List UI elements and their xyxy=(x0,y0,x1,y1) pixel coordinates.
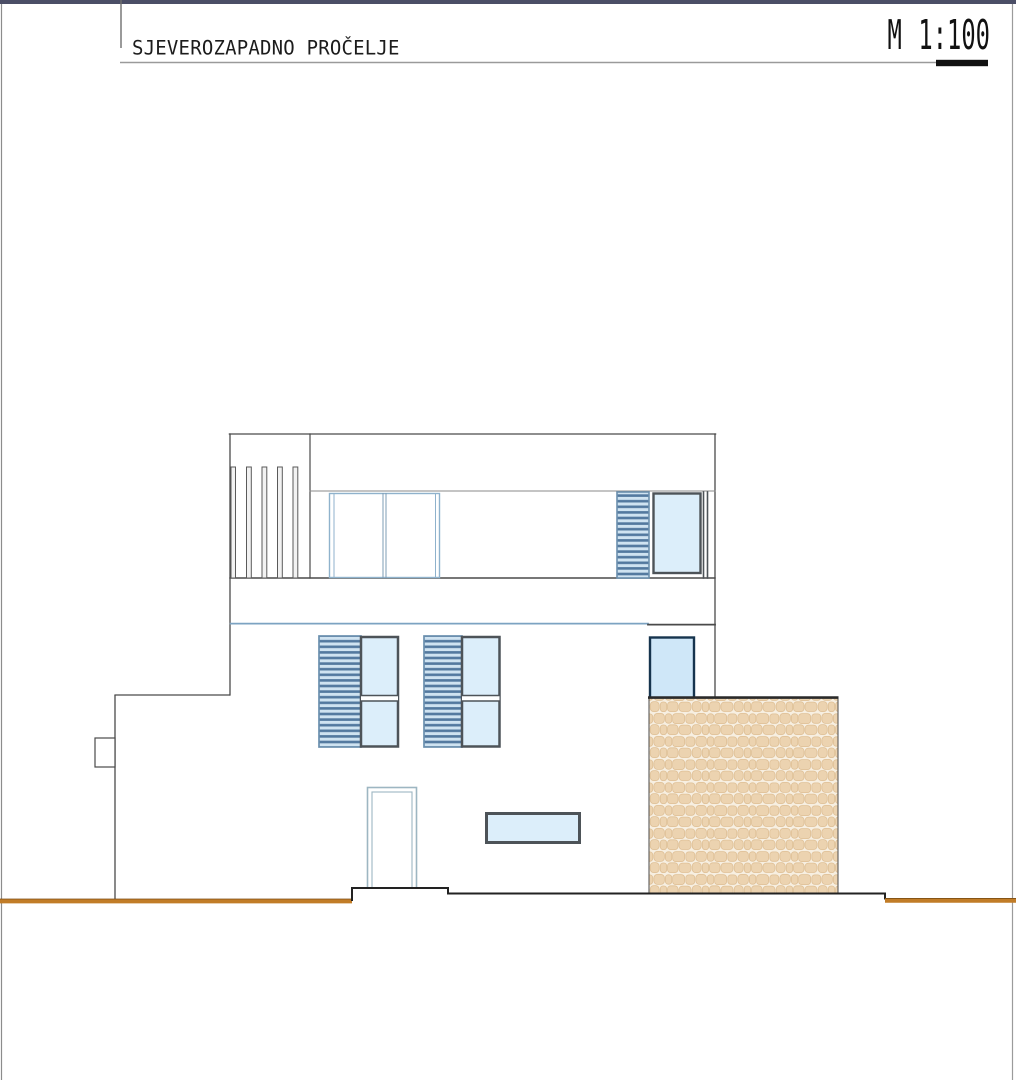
glazed-window-icon xyxy=(462,637,500,747)
louver-shutter-icon xyxy=(617,492,649,578)
vertical-louver-slats xyxy=(231,467,298,578)
slat-icon xyxy=(262,467,267,578)
stone-wall xyxy=(648,698,839,894)
window-mid-rail xyxy=(462,696,500,702)
ground-lines xyxy=(0,888,1016,901)
drawing-title: SJEVEROZAPADNO PROČELJE xyxy=(132,37,400,60)
scale-label: M 1:100 xyxy=(816,13,990,57)
top-band xyxy=(0,0,1016,4)
glazed-window-icon xyxy=(361,637,398,747)
upper-shutter-window-unit xyxy=(617,492,708,578)
slat-icon xyxy=(278,467,283,578)
window-mid-rail xyxy=(361,696,398,702)
lower-floor xyxy=(95,636,839,900)
page-borders xyxy=(0,0,1016,1080)
strip-window-icon xyxy=(487,814,580,843)
lower-window-b xyxy=(424,636,501,747)
upper-sliding-window xyxy=(330,494,440,578)
wall-projection-box xyxy=(95,738,115,767)
louver-shutter-icon xyxy=(424,636,462,747)
lower-window-a xyxy=(319,636,399,747)
scale-bar-icon xyxy=(936,60,988,66)
slat-icon xyxy=(293,467,298,578)
louver-shutter-icon xyxy=(319,636,361,747)
slat-icon xyxy=(247,467,252,578)
slat-icon xyxy=(231,467,236,578)
elevation-sheet: SJEVEROZAPADNO PROČELJE M 1:100 xyxy=(0,0,1016,1080)
elevation-drawing xyxy=(0,0,1016,1080)
glazed-window-icon xyxy=(654,494,701,574)
stone-wall-hatch-icon xyxy=(649,698,838,894)
corner-window-icon xyxy=(650,638,694,699)
entry-door xyxy=(368,788,417,889)
